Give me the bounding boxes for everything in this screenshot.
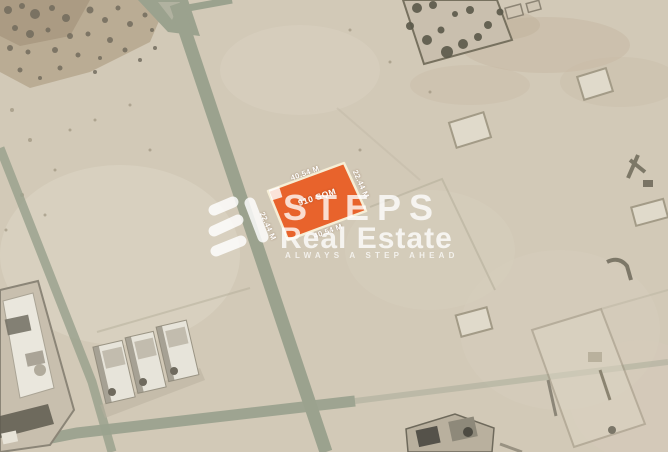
satellite-map: 40.54 M 22.44 M 22.44 M 40.54 M 910 SQM … <box>0 0 668 452</box>
